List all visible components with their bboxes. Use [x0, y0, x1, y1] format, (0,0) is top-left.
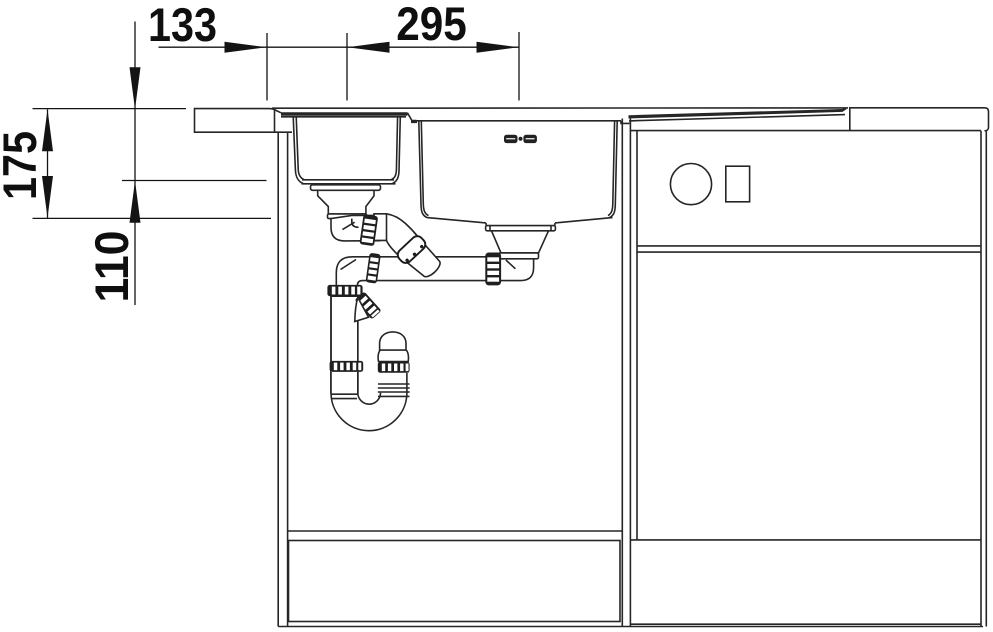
svg-text:175: 175 — [0, 131, 47, 200]
svg-text:295: 295 — [396, 0, 467, 51]
svg-text:133: 133 — [148, 0, 217, 52]
svg-text:110: 110 — [86, 230, 138, 302]
